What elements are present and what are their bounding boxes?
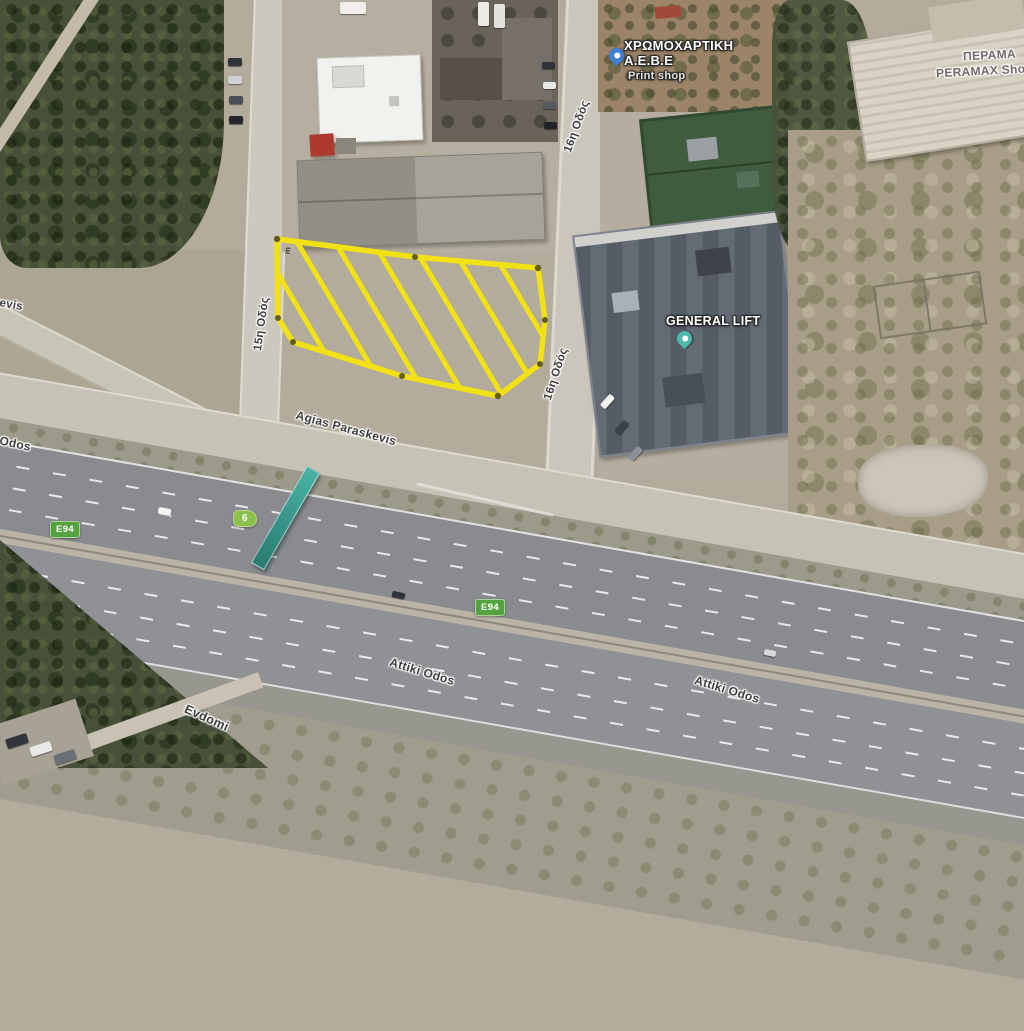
parcel-vertex-dots [274,236,548,399]
poi-general-lift[interactable]: GENERAL LIFT [666,314,760,328]
poi-print-shop-name2[interactable]: Α.Ε.Β.Ε [624,53,673,68]
route-badge-e94-left: E94 [50,521,80,538]
poi-peramax-name[interactable]: ΠΕΡΑΜΑ [963,47,1017,64]
parcel-overlay[interactable] [0,0,1024,768]
poi-print-shop-name[interactable]: ΧΡΩΜΟΧΑΡΤΙΚΗ [624,38,733,53]
parcel-measure-label: m [283,246,293,255]
poi-print-shop-type[interactable]: Print shop [628,70,685,82]
route-badge-e94-mid: E94 [475,599,505,616]
satellite-map-view: { "map": { "type": "satellite-aerial-vie… [0,0,1024,768]
exit-badge-6: 6 [233,510,257,527]
